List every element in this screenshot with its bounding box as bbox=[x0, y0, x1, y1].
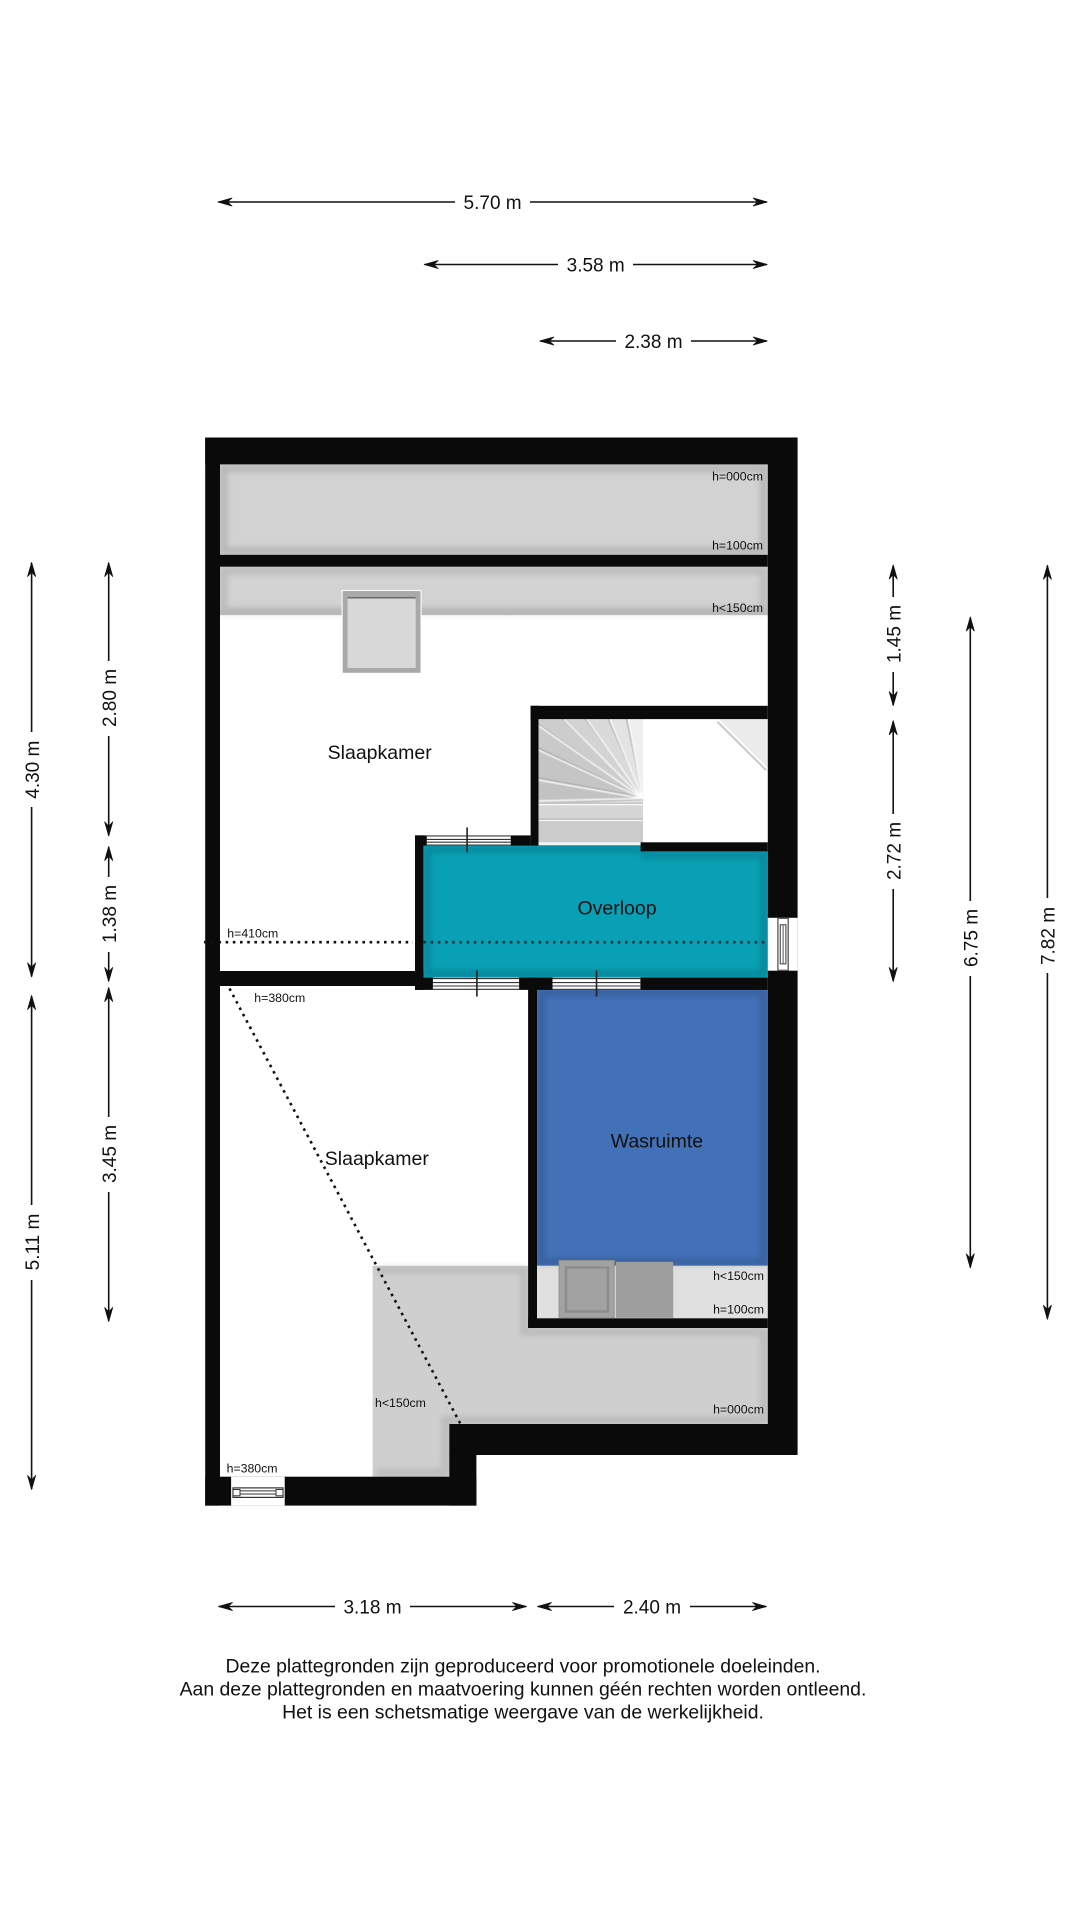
svg-text:h=100cm: h=100cm bbox=[713, 1303, 764, 1317]
svg-text:2.80 m: 2.80 m bbox=[100, 669, 121, 727]
svg-text:3.45 m: 3.45 m bbox=[100, 1125, 121, 1183]
svg-text:h<150cm: h<150cm bbox=[713, 1269, 764, 1283]
svg-text:2.40 m: 2.40 m bbox=[623, 1598, 681, 1619]
svg-text:h<150cm: h<150cm bbox=[712, 601, 763, 615]
svg-text:Overloop: Overloop bbox=[577, 897, 656, 919]
svg-text:1.38 m: 1.38 m bbox=[100, 885, 121, 943]
svg-text:h=380cm: h=380cm bbox=[227, 1461, 278, 1475]
svg-text:Aan deze plattegronden en maat: Aan deze plattegronden en maatvoering ku… bbox=[180, 1679, 867, 1701]
svg-text:h=410cm: h=410cm bbox=[227, 927, 278, 941]
svg-text:Het is een schetsmatige weerga: Het is een schetsmatige weergave van de … bbox=[282, 1702, 764, 1724]
svg-text:Slaapkamer: Slaapkamer bbox=[328, 742, 433, 764]
svg-text:3.58 m: 3.58 m bbox=[567, 256, 625, 277]
svg-text:h=380cm: h=380cm bbox=[254, 991, 305, 1005]
svg-text:3.18 m: 3.18 m bbox=[343, 1598, 401, 1619]
svg-text:h=000cm: h=000cm bbox=[712, 470, 763, 484]
svg-text:5.11 m: 5.11 m bbox=[23, 1214, 44, 1271]
svg-text:2.38 m: 2.38 m bbox=[624, 332, 682, 353]
svg-text:Wasruimte: Wasruimte bbox=[611, 1131, 703, 1153]
svg-text:h=100cm: h=100cm bbox=[712, 538, 763, 552]
svg-text:h<150cm: h<150cm bbox=[375, 1396, 426, 1410]
svg-text:1.45 m: 1.45 m bbox=[884, 605, 905, 663]
svg-text:2.72 m: 2.72 m bbox=[884, 822, 905, 880]
svg-text:h=000cm: h=000cm bbox=[713, 1403, 764, 1417]
svg-text:5.70 m: 5.70 m bbox=[464, 193, 522, 214]
svg-text:4.30 m: 4.30 m bbox=[23, 741, 44, 799]
svg-text:6.75 m: 6.75 m bbox=[962, 909, 983, 967]
svg-text:7.82 m: 7.82 m bbox=[1039, 907, 1060, 965]
svg-text:Slaapkamer: Slaapkamer bbox=[325, 1148, 430, 1170]
svg-text:Deze plattegronden zijn geprod: Deze plattegronden zijn geproduceerd voo… bbox=[225, 1656, 820, 1678]
